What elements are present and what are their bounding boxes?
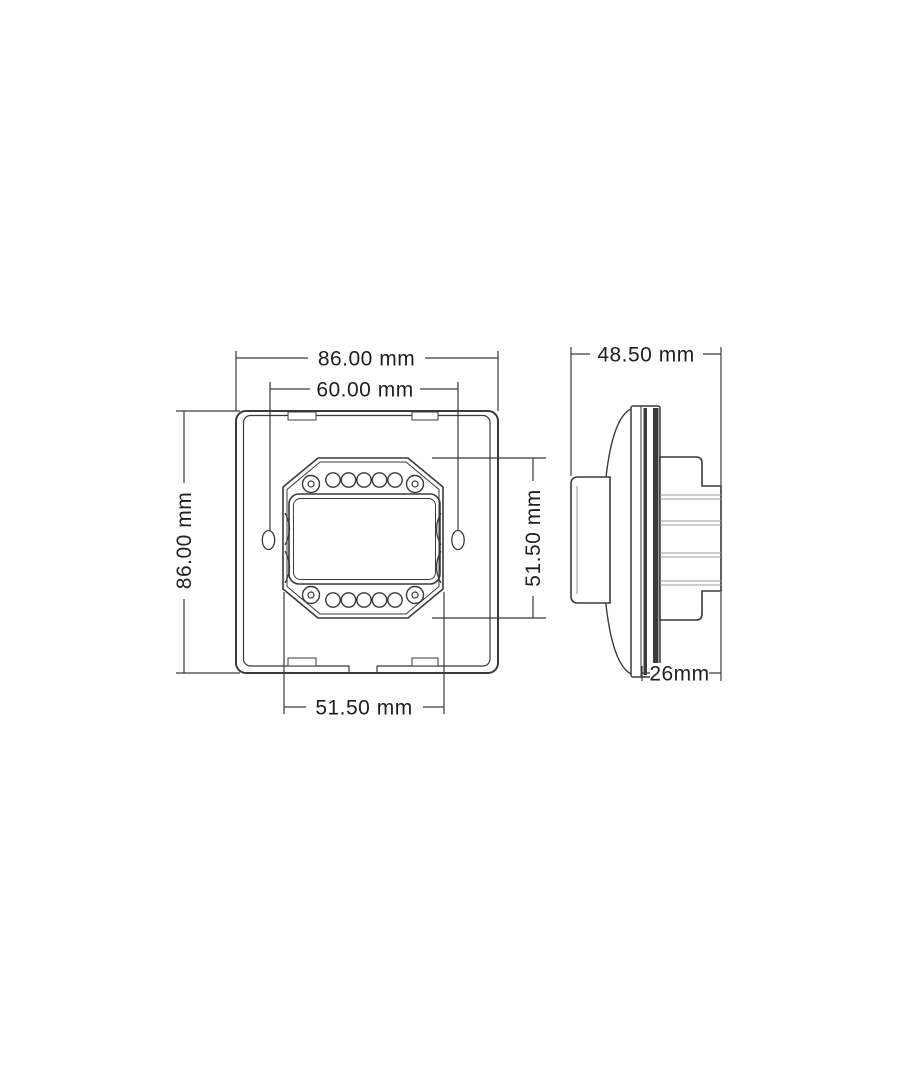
dimension-front-height-outer: 86.00 mm — [172, 411, 240, 673]
panel-edge-band — [644, 408, 648, 675]
dimension-label: 60.00 mm — [316, 379, 413, 402]
bracket-outline-outer — [283, 458, 443, 618]
bottom-notch-mask — [349, 663, 377, 669]
clip-tab-top-right — [412, 412, 438, 420]
front-view — [236, 411, 498, 673]
dimension-label: 51.50 mm — [315, 697, 412, 720]
mount-slot-left — [262, 531, 274, 550]
dimension-drawing: 86.00 mm 60.00 mm 86.00 mm 51.50 mm 51.5… — [0, 0, 910, 1080]
frame-edge-band — [653, 408, 659, 675]
mounting-bracket — [283, 458, 443, 618]
dimension-label: 48.50 mm — [597, 344, 694, 367]
mount-slot-right — [452, 531, 464, 550]
clip-tab-bottom-right — [412, 658, 438, 666]
clip-tab-bottom-left — [288, 658, 316, 666]
dimension-label: 26mm — [649, 663, 709, 686]
drawing-canvas: 86.00 mm 60.00 mm 86.00 mm 51.50 mm 51.5… — [0, 0, 910, 1080]
side-view — [571, 406, 721, 677]
clip-tab-top-left — [288, 412, 316, 420]
rear-module — [660, 457, 721, 620]
dimension-label: 51.50 mm — [522, 489, 545, 586]
dimension-label: 86.00 mm — [318, 348, 415, 371]
dimension-label: 86.00 mm — [173, 492, 196, 589]
